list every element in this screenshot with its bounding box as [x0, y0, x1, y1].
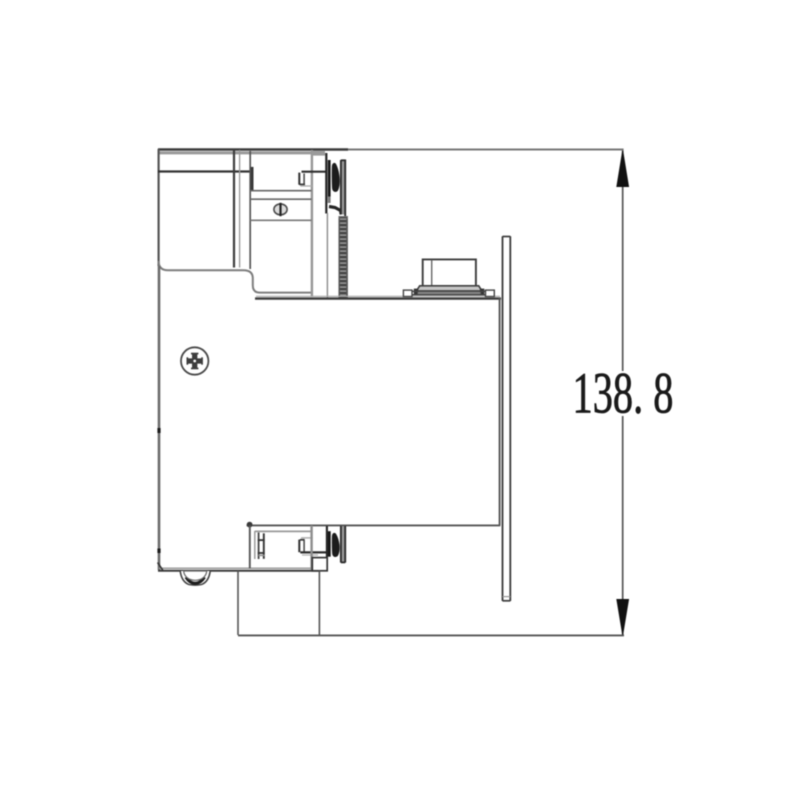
- svg-text:138. 8: 138. 8: [573, 361, 674, 426]
